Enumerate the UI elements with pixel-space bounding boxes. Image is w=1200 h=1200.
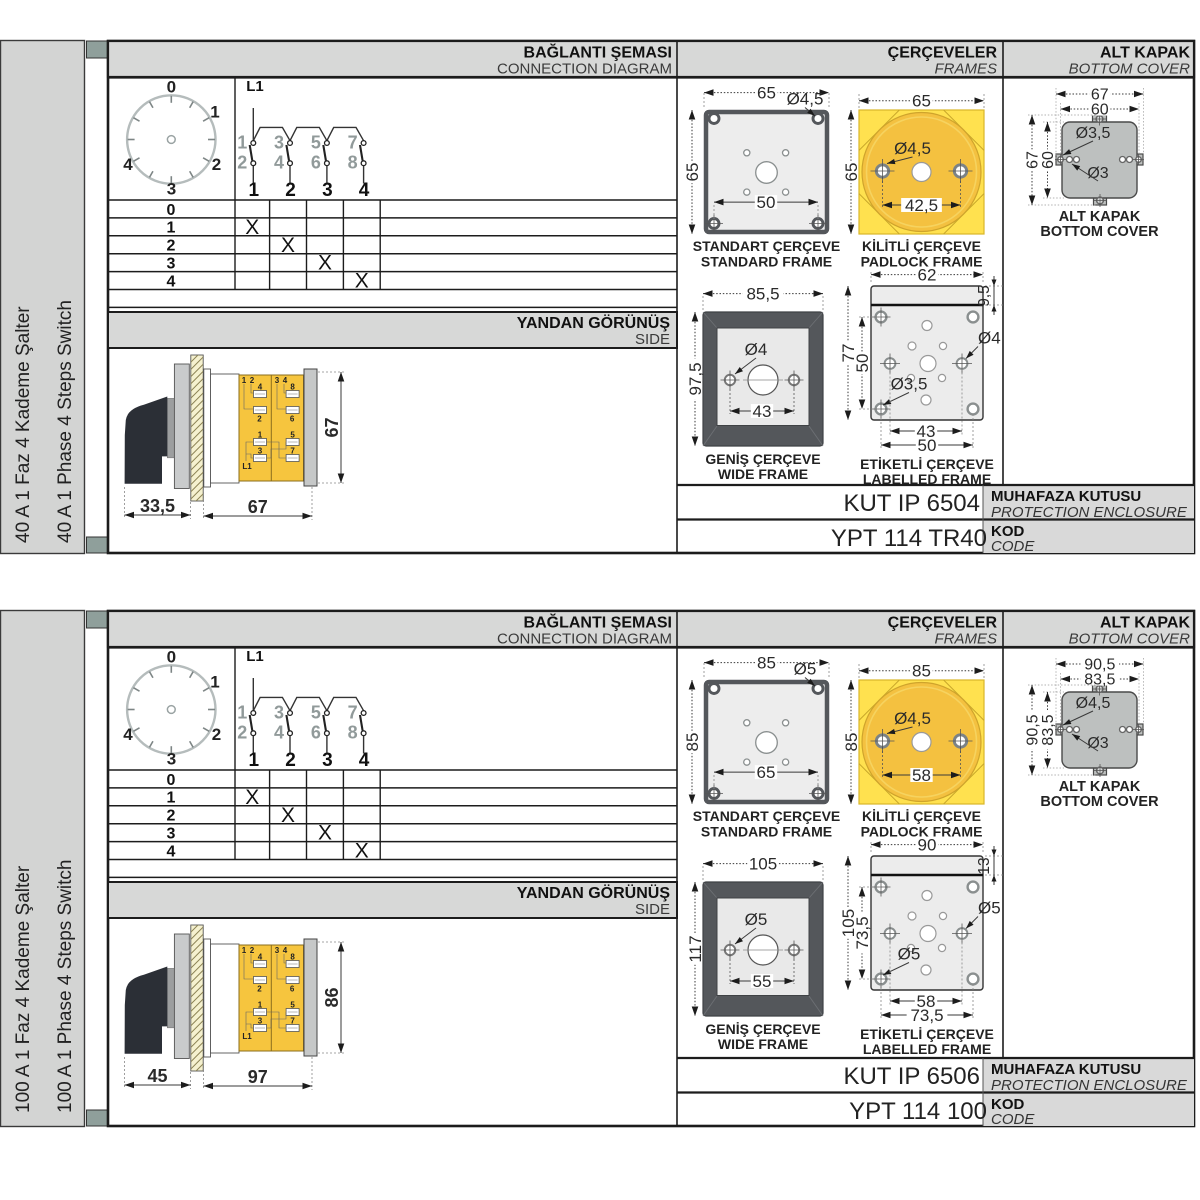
svg-text:X: X <box>281 804 295 827</box>
svg-text:42,5: 42,5 <box>905 196 938 215</box>
svg-text:X: X <box>355 840 369 863</box>
svg-text:83,5: 83,5 <box>1040 714 1057 745</box>
svg-text:1: 1 <box>237 703 247 723</box>
svg-text:2: 2 <box>167 808 176 825</box>
svg-text:1: 1 <box>242 376 247 385</box>
svg-text:8: 8 <box>290 953 295 962</box>
svg-text:90,5: 90,5 <box>1024 714 1041 745</box>
svg-text:BOTTOM COVER: BOTTOM COVER <box>1069 631 1191 648</box>
svg-text:Ø5: Ø5 <box>794 660 817 679</box>
svg-text:3: 3 <box>322 180 333 201</box>
svg-text:L1: L1 <box>246 78 264 95</box>
svg-text:Ø5: Ø5 <box>745 910 768 929</box>
svg-text:ÇERÇEVELER: ÇERÇEVELER <box>888 45 998 62</box>
svg-text:86: 86 <box>322 987 342 1007</box>
svg-text:FRAMES: FRAMES <box>934 61 997 78</box>
svg-text:1: 1 <box>258 1001 263 1010</box>
svg-text:Ø4,5: Ø4,5 <box>787 90 824 109</box>
svg-text:Ø3: Ø3 <box>1087 735 1108 752</box>
svg-text:ETİKETLİ ÇERÇEVE: ETİKETLİ ÇERÇEVE <box>860 456 994 472</box>
svg-text:SIDE: SIDE <box>635 331 670 348</box>
svg-text:L1: L1 <box>242 462 252 471</box>
svg-text:ALT KAPAK: ALT KAPAK <box>1059 209 1141 225</box>
svg-text:67: 67 <box>322 417 342 437</box>
svg-text:KUT IP 6506: KUT IP 6506 <box>843 1063 980 1090</box>
svg-text:KİLİTLİ ÇERÇEVE: KİLİTLİ ÇERÇEVE <box>862 238 981 254</box>
svg-text:BAĞLANTI ŞEMASI: BAĞLANTI ŞEMASI <box>524 43 672 62</box>
svg-text:X: X <box>245 216 259 239</box>
svg-text:1: 1 <box>210 673 219 692</box>
svg-text:85,5: 85,5 <box>746 284 779 303</box>
svg-text:6: 6 <box>290 415 295 424</box>
svg-text:Ø4: Ø4 <box>745 340 768 359</box>
svg-text:Ø3,5: Ø3,5 <box>891 375 928 394</box>
svg-text:2: 2 <box>250 946 255 955</box>
svg-text:FRAMES: FRAMES <box>934 631 997 648</box>
svg-text:1: 1 <box>242 946 247 955</box>
svg-text:L1: L1 <box>246 648 264 665</box>
svg-text:WIDE FRAME: WIDE FRAME <box>718 1036 808 1052</box>
svg-text:ÇERÇEVELER: ÇERÇEVELER <box>888 615 998 632</box>
svg-text:85: 85 <box>757 653 776 672</box>
svg-text:6: 6 <box>311 153 321 173</box>
svg-text:62: 62 <box>918 265 937 284</box>
svg-text:6: 6 <box>311 723 321 743</box>
svg-text:65: 65 <box>683 163 702 182</box>
svg-text:PROTECTION ENCLOSURE: PROTECTION ENCLOSURE <box>991 504 1188 521</box>
svg-text:50: 50 <box>853 354 872 373</box>
svg-text:Ø4,5: Ø4,5 <box>1076 695 1111 712</box>
svg-text:3: 3 <box>275 946 280 955</box>
svg-text:WIDE FRAME: WIDE FRAME <box>718 466 808 482</box>
svg-text:100 A 1 Phase 4 Steps Switch: 100 A 1 Phase 4 Steps Switch <box>55 859 76 1113</box>
svg-text:3: 3 <box>258 1017 263 1026</box>
svg-text:7: 7 <box>290 447 295 456</box>
svg-text:8: 8 <box>290 383 295 392</box>
svg-text:1: 1 <box>249 750 260 771</box>
svg-text:2: 2 <box>250 376 255 385</box>
svg-text:2: 2 <box>257 985 262 994</box>
svg-text:4: 4 <box>123 155 133 174</box>
svg-text:MUHAFAZA KUTUSU: MUHAFAZA KUTUSU <box>991 1061 1141 1078</box>
svg-text:4: 4 <box>359 180 370 201</box>
svg-text:5: 5 <box>311 703 321 723</box>
svg-text:85: 85 <box>912 662 931 681</box>
svg-text:3: 3 <box>275 376 280 385</box>
svg-text:85: 85 <box>842 733 861 752</box>
svg-text:1: 1 <box>249 180 260 201</box>
svg-text:105: 105 <box>749 854 777 873</box>
svg-text:67: 67 <box>1024 151 1041 169</box>
svg-text:STANDART ÇERÇEVE: STANDART ÇERÇEVE <box>693 238 841 254</box>
svg-text:ETİKETLİ ÇERÇEVE: ETİKETLİ ÇERÇEVE <box>860 1026 994 1042</box>
svg-text:58: 58 <box>912 766 931 785</box>
svg-text:LABELLED FRAME: LABELLED FRAME <box>863 1041 991 1057</box>
svg-text:0: 0 <box>167 202 176 219</box>
svg-text:2: 2 <box>212 725 221 744</box>
svg-text:BOTTOM COVER: BOTTOM COVER <box>1040 794 1159 810</box>
svg-text:90: 90 <box>918 835 937 854</box>
svg-text:BAĞLANTI ŞEMASI: BAĞLANTI ŞEMASI <box>524 613 672 632</box>
svg-text:7: 7 <box>348 703 358 723</box>
svg-text:BOTTOM COVER: BOTTOM COVER <box>1040 224 1159 240</box>
svg-text:60: 60 <box>1040 151 1057 169</box>
svg-text:7: 7 <box>290 1017 295 1026</box>
svg-text:2: 2 <box>237 723 247 743</box>
svg-text:50: 50 <box>918 436 937 455</box>
svg-text:ALT KAPAK: ALT KAPAK <box>1100 45 1191 62</box>
svg-text:STANDARD FRAME: STANDARD FRAME <box>701 824 832 840</box>
svg-text:1: 1 <box>167 220 176 237</box>
svg-text:13: 13 <box>976 857 993 874</box>
svg-text:0: 0 <box>167 772 176 789</box>
svg-text:4: 4 <box>123 725 133 744</box>
svg-text:8: 8 <box>348 153 358 173</box>
svg-text:PROTECTION ENCLOSURE: PROTECTION ENCLOSURE <box>991 1077 1188 1094</box>
svg-text:8: 8 <box>348 723 358 743</box>
svg-text:5: 5 <box>290 431 295 440</box>
svg-text:33,5: 33,5 <box>140 496 175 516</box>
svg-text:CODE: CODE <box>991 538 1035 555</box>
svg-text:KUT IP 6504: KUT IP 6504 <box>843 490 980 517</box>
svg-text:L1: L1 <box>242 1032 252 1041</box>
svg-text:40 A 1 Phase 4 Steps Switch: 40 A 1 Phase 4 Steps Switch <box>55 300 76 543</box>
svg-text:3: 3 <box>167 750 176 769</box>
svg-text:3: 3 <box>322 750 333 771</box>
svg-text:2: 2 <box>167 238 176 255</box>
svg-text:X: X <box>245 786 259 809</box>
svg-text:83,5: 83,5 <box>1084 671 1115 688</box>
svg-text:4: 4 <box>274 723 284 743</box>
svg-text:3: 3 <box>167 180 176 199</box>
svg-text:Ø4,5: Ø4,5 <box>894 139 931 158</box>
svg-text:4: 4 <box>258 383 263 392</box>
svg-text:60: 60 <box>1091 101 1109 118</box>
svg-text:6: 6 <box>290 985 295 994</box>
svg-text:3: 3 <box>274 703 284 723</box>
svg-text:1: 1 <box>258 431 263 440</box>
svg-text:7: 7 <box>348 133 358 153</box>
svg-text:4: 4 <box>167 273 176 290</box>
svg-text:GENİŞ ÇERÇEVE: GENİŞ ÇERÇEVE <box>705 1021 820 1037</box>
svg-text:SIDE: SIDE <box>635 901 670 918</box>
svg-text:X: X <box>281 234 295 257</box>
svg-text:5: 5 <box>311 133 321 153</box>
svg-text:0: 0 <box>167 648 176 667</box>
svg-text:X: X <box>318 252 332 275</box>
svg-text:4: 4 <box>167 843 176 860</box>
svg-text:Ø4: Ø4 <box>978 329 1001 348</box>
svg-text:Ø3,5: Ø3,5 <box>1076 125 1111 142</box>
svg-text:65: 65 <box>842 163 861 182</box>
svg-text:40 A 1 Faz 4 Kademe Şalter: 40 A 1 Faz 4 Kademe Şalter <box>13 306 34 543</box>
svg-text:117: 117 <box>686 935 705 962</box>
svg-text:3: 3 <box>167 825 176 842</box>
svg-text:97: 97 <box>248 1067 268 1087</box>
svg-text:65: 65 <box>912 92 931 111</box>
svg-text:2: 2 <box>257 415 262 424</box>
svg-text:Ø5: Ø5 <box>978 899 1001 918</box>
svg-text:73,5: 73,5 <box>910 1006 943 1025</box>
svg-text:Ø4,5: Ø4,5 <box>894 709 931 728</box>
svg-text:2: 2 <box>237 153 247 173</box>
svg-text:STANDART ÇERÇEVE: STANDART ÇERÇEVE <box>693 808 841 824</box>
svg-text:4: 4 <box>283 376 288 385</box>
svg-text:85: 85 <box>683 733 702 752</box>
svg-text:45: 45 <box>147 1066 167 1086</box>
svg-text:CODE: CODE <box>991 1111 1035 1128</box>
svg-text:73,5: 73,5 <box>853 916 872 949</box>
svg-text:67: 67 <box>248 497 268 517</box>
svg-text:5: 5 <box>290 1001 295 1010</box>
svg-text:STANDARD FRAME: STANDARD FRAME <box>701 254 832 270</box>
svg-text:GENİŞ ÇERÇEVE: GENİŞ ÇERÇEVE <box>705 451 820 467</box>
svg-text:2: 2 <box>285 750 296 771</box>
svg-text:0: 0 <box>167 78 176 97</box>
svg-text:YPT 114 TR40: YPT 114 TR40 <box>831 525 987 552</box>
svg-text:65: 65 <box>757 83 776 102</box>
svg-text:4: 4 <box>283 946 288 955</box>
svg-text:2: 2 <box>212 155 221 174</box>
svg-text:100 A 1 Faz 4 Kademe Şalter: 100 A 1 Faz 4 Kademe Şalter <box>13 865 34 1113</box>
svg-text:Ø3: Ø3 <box>1087 165 1108 182</box>
svg-text:3: 3 <box>274 133 284 153</box>
svg-text:CONNECTION DIAGRAM: CONNECTION DIAGRAM <box>497 61 672 78</box>
svg-text:KİLİTLİ ÇERÇEVE: KİLİTLİ ÇERÇEVE <box>862 808 981 824</box>
svg-text:9,5: 9,5 <box>976 285 993 307</box>
svg-text:BOTTOM COVER: BOTTOM COVER <box>1069 61 1191 78</box>
svg-text:65: 65 <box>757 763 776 782</box>
svg-text:1: 1 <box>210 103 219 122</box>
svg-text:43: 43 <box>753 402 772 421</box>
svg-text:YANDAN GÖRÜNÜŞ: YANDAN GÖRÜNÜŞ <box>517 883 671 902</box>
svg-text:CONNECTION DIAGRAM: CONNECTION DIAGRAM <box>497 631 672 648</box>
svg-text:50: 50 <box>757 193 776 212</box>
svg-text:2: 2 <box>285 180 296 201</box>
svg-text:1: 1 <box>237 133 247 153</box>
svg-text:X: X <box>355 270 369 293</box>
svg-text:ALT KAPAK: ALT KAPAK <box>1100 615 1191 632</box>
svg-text:YPT 114 100: YPT 114 100 <box>849 1098 987 1125</box>
svg-text:ALT KAPAK: ALT KAPAK <box>1059 779 1141 795</box>
svg-text:4: 4 <box>274 153 284 173</box>
svg-text:3: 3 <box>258 447 263 456</box>
svg-text:3: 3 <box>167 255 176 272</box>
svg-text:4: 4 <box>258 953 263 962</box>
svg-text:97,5: 97,5 <box>686 362 705 395</box>
svg-text:Ø5: Ø5 <box>898 945 921 964</box>
svg-text:MUHAFAZA KUTUSU: MUHAFAZA KUTUSU <box>991 488 1141 505</box>
svg-text:4: 4 <box>359 750 370 771</box>
svg-text:X: X <box>318 822 332 845</box>
svg-text:YANDAN GÖRÜNÜŞ: YANDAN GÖRÜNÜŞ <box>517 313 671 332</box>
svg-text:1: 1 <box>167 790 176 807</box>
svg-text:55: 55 <box>753 972 772 991</box>
